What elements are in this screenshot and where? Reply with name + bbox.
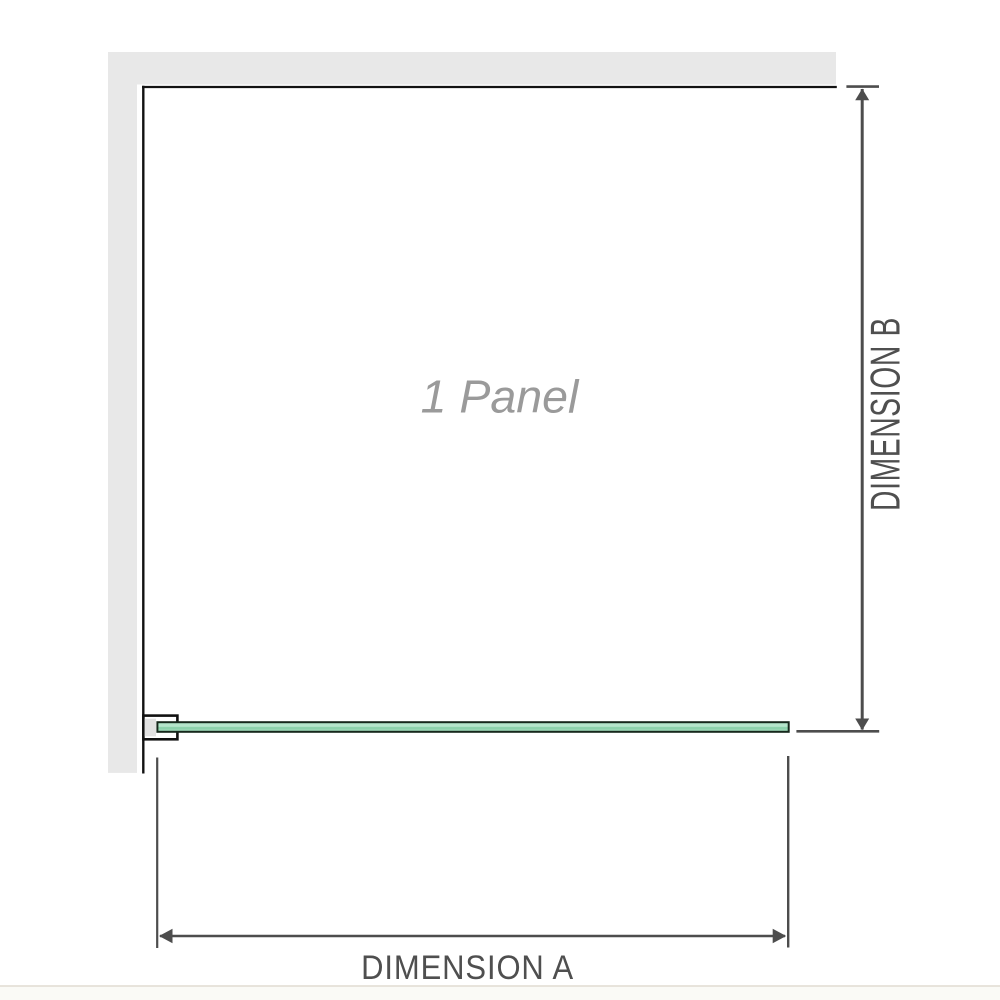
svg-text:DIMENSION A: DIMENSION A (361, 947, 574, 986)
svg-text:1 Panel: 1 Panel (421, 371, 580, 423)
svg-text:DIMENSION B: DIMENSION B (862, 317, 909, 511)
